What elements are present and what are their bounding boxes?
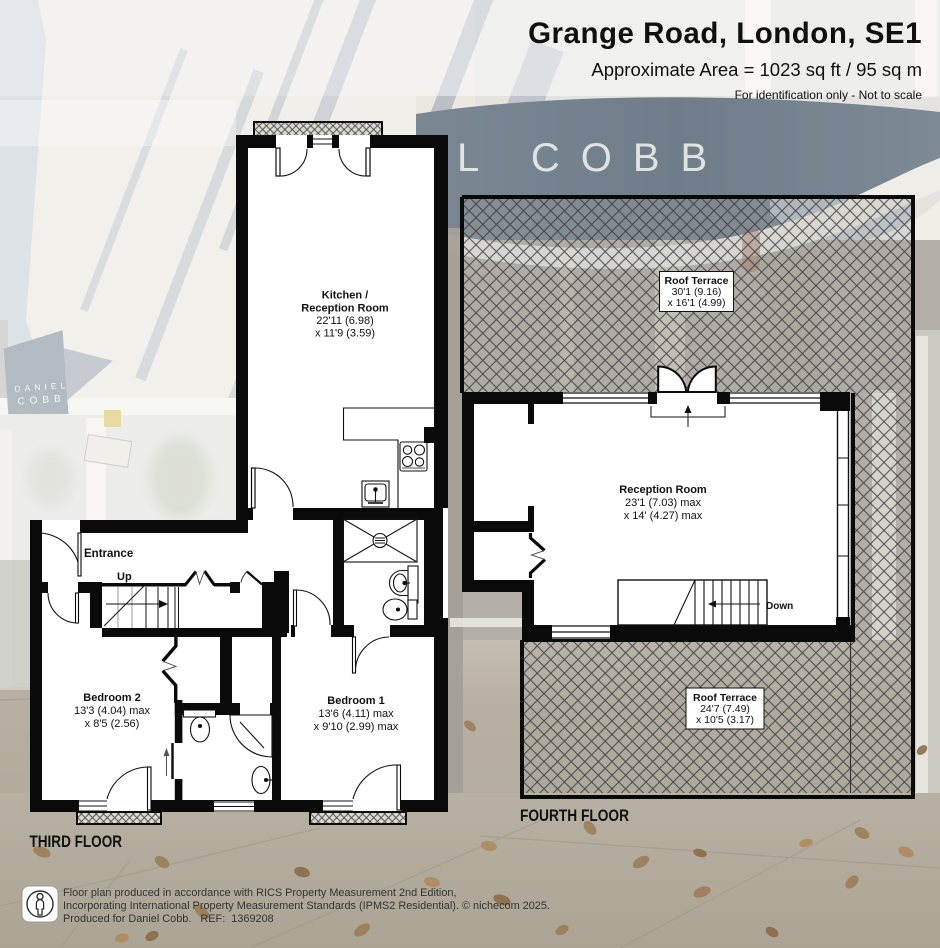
svg-text:13'3 (4.04) max: 13'3 (4.04) max	[74, 705, 151, 717]
svg-text:FOURTH FLOOR: FOURTH FLOOR	[520, 806, 629, 825]
svg-text:Produced for Daniel Cobb. RE: Produced for Daniel Cobb. REF: 1369208	[63, 913, 274, 925]
svg-text:THIRD FLOOR: THIRD FLOOR	[30, 832, 123, 851]
svg-text:Up: Up	[117, 571, 132, 583]
svg-text:23'1 (7.03) max: 23'1 (7.03) max	[625, 497, 702, 509]
svg-text:x 11'9 (3.59): x 11'9 (3.59)	[315, 328, 375, 340]
svg-text:Entrance: Entrance	[84, 548, 133, 560]
svg-text:Incorporating International Pr: Incorporating International Property Mea…	[63, 900, 459, 912]
svg-text:© nichecom 2025.: © nichecom 2025.	[462, 900, 550, 912]
svg-text:Reception Room: Reception Room	[301, 303, 389, 315]
svg-text:Down: Down	[766, 601, 793, 612]
svg-text:Reception Room: Reception Room	[619, 484, 707, 496]
svg-text:x 8'5 (2.56): x 8'5 (2.56)	[85, 718, 140, 730]
svg-text:x 16'1 (4.99): x 16'1 (4.99)	[667, 297, 725, 309]
svg-text:22'11 (6.98): 22'11 (6.98)	[316, 315, 374, 327]
svg-text:Kitchen /: Kitchen /	[322, 290, 368, 302]
svg-text:x 10'5 (3.17): x 10'5 (3.17)	[696, 714, 754, 726]
svg-text:x 9'10 (2.99) max: x 9'10 (2.99) max	[314, 721, 399, 733]
svg-text:13'6 (4.11) max: 13'6 (4.11) max	[318, 708, 394, 720]
svg-text:Bedroom 1: Bedroom 1	[327, 695, 384, 707]
svg-text:Bedroom 2: Bedroom 2	[83, 692, 140, 704]
svg-text:Floor plan produced in accorda: Floor plan produced in accordance with R…	[63, 887, 456, 899]
svg-text:L COBB: L COBB	[457, 136, 728, 180]
svg-text:x 14' (4.27) max: x 14' (4.27) max	[624, 510, 703, 522]
